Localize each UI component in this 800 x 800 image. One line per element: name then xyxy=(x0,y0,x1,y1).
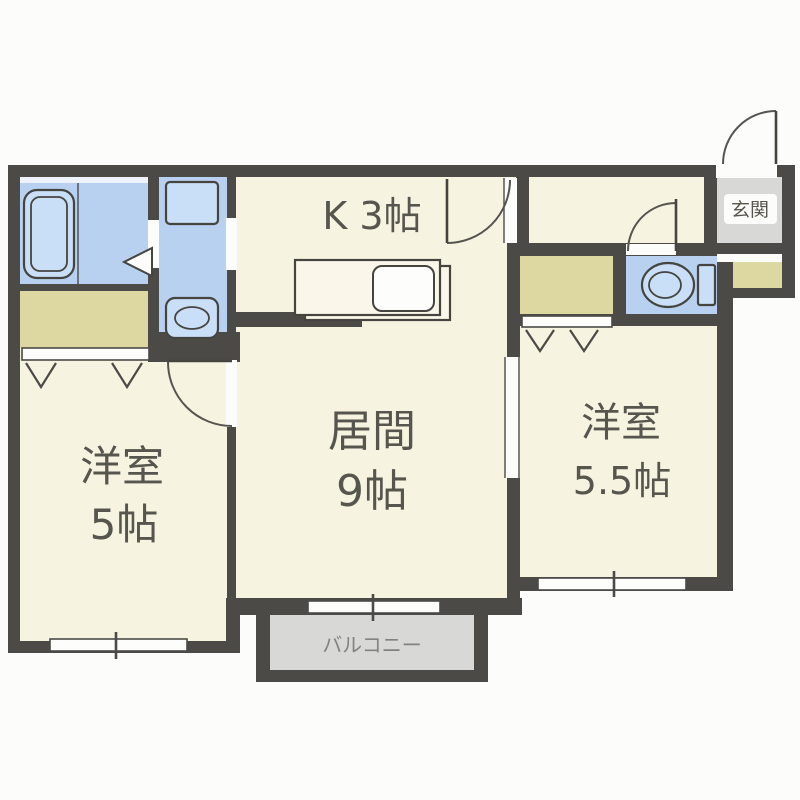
shoe-cabinet xyxy=(733,261,782,288)
wall-closet-toilet xyxy=(613,245,626,325)
bedroom-west-opening xyxy=(226,360,237,427)
wall-under-shoe-cabinet xyxy=(733,288,795,298)
wash-basin xyxy=(166,298,218,338)
window-bedroom-west xyxy=(50,639,187,651)
wall-top xyxy=(8,165,795,177)
kitchen-sink xyxy=(373,266,434,311)
kitchen-label: K 3帖 xyxy=(322,194,421,238)
wall-bath-closet xyxy=(20,284,150,291)
washroom-kitchen-opening xyxy=(226,218,237,270)
balcony-wall-bottom xyxy=(256,670,488,682)
bedroom-east-size: 5.5帖 xyxy=(573,459,671,503)
washing-machine-pan xyxy=(166,182,218,224)
toilet-tank xyxy=(698,265,715,305)
living-room-name: 居間 xyxy=(328,406,416,457)
closet-west xyxy=(20,291,150,348)
bedroom-east-name: 洋室 xyxy=(581,400,661,446)
wall-east-right xyxy=(717,245,733,590)
closet-west-threshold xyxy=(22,348,149,360)
bedroom-west-size: 5帖 xyxy=(90,500,159,549)
closet-east xyxy=(520,256,613,316)
toilet-opening xyxy=(626,244,676,255)
bedroom-east-opening xyxy=(505,357,520,478)
hallway-floor xyxy=(514,170,710,250)
window-bedroom-east xyxy=(538,578,686,590)
wall-outer-right xyxy=(782,165,795,298)
bathroom-top-strip xyxy=(18,177,152,183)
bedroom-west-name: 洋室 xyxy=(80,442,164,491)
living-room-size: 9帖 xyxy=(336,466,408,517)
entrance-label: 玄関 xyxy=(731,199,769,221)
wall-entrance-left xyxy=(704,177,717,245)
entrance-door-arc xyxy=(723,111,776,164)
balcony-label: バルコニー xyxy=(322,633,422,657)
floor-plan-page: K 3帖 居間 9帖 洋室 5帖 洋室 5.5帖 玄関 バルコニー xyxy=(0,0,800,800)
wall-kitchen-hall xyxy=(516,165,529,256)
closet-east-threshold xyxy=(522,316,612,327)
wall-left xyxy=(8,165,20,653)
bedroom-west-floor xyxy=(14,350,234,646)
entrance-step xyxy=(717,254,782,262)
floor-plan: K 3帖 居間 9帖 洋室 5帖 洋室 5.5帖 玄関 バルコニー xyxy=(0,0,800,800)
entrance-opening xyxy=(716,163,777,178)
